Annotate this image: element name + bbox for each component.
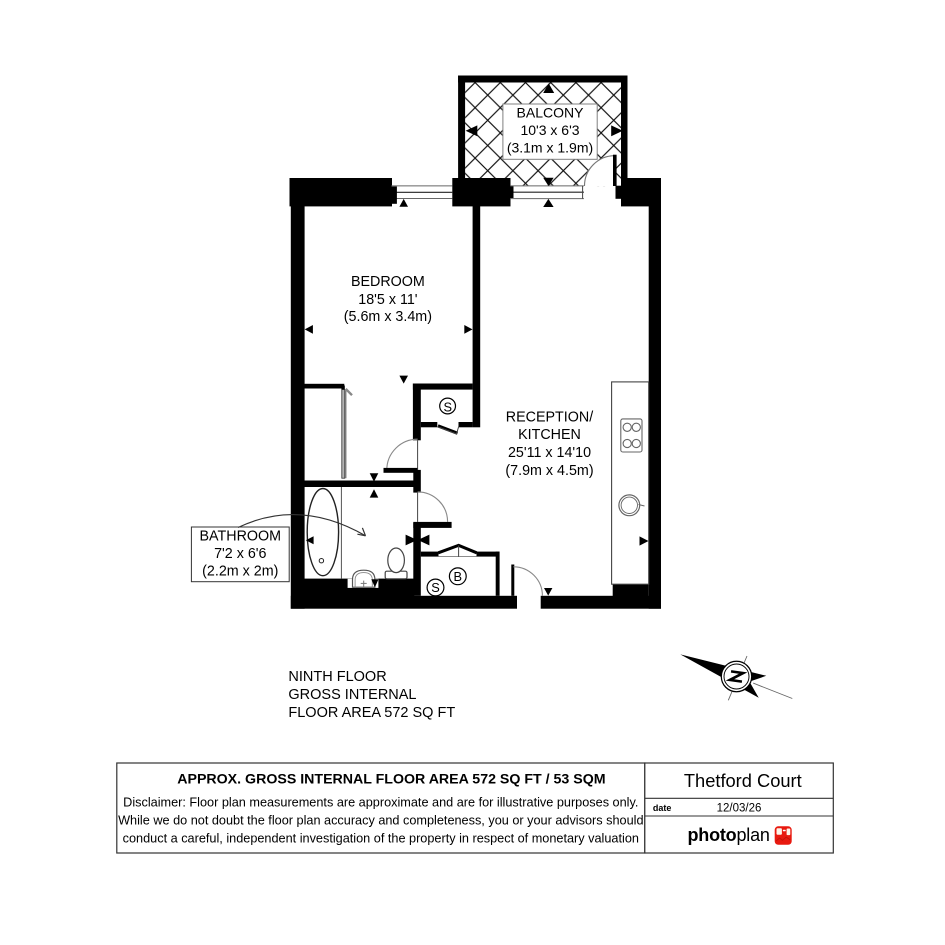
svg-text:FLOOR AREA 572 SQ FT: FLOOR AREA 572 SQ FT (288, 705, 455, 721)
svg-text:S: S (444, 399, 453, 414)
svg-text:(5.6m x 3.4m): (5.6m x 3.4m) (344, 309, 432, 325)
svg-text:BEDROOM: BEDROOM (351, 274, 425, 290)
svg-text:25'11 x 14'10: 25'11 x 14'10 (508, 445, 591, 461)
svg-text:S: S (431, 580, 440, 595)
svg-text:Disclaimer: Floor plan measure: Disclaimer: Floor plan measurements are … (123, 796, 638, 810)
svg-text:B: B (454, 569, 463, 584)
svg-text:Thetford Court: Thetford Court (684, 770, 802, 791)
svg-text:APPROX. GROSS INTERNAL FLOOR A: APPROX. GROSS INTERNAL FLOOR AREA 572 SQ… (177, 772, 605, 788)
svg-text:KITCHEN: KITCHEN (518, 427, 581, 443)
svg-text:BALCONY: BALCONY (517, 105, 585, 121)
svg-text:date: date (653, 803, 672, 813)
svg-text:RECEPTION/: RECEPTION/ (506, 410, 593, 426)
svg-text:BATHROOM: BATHROOM (200, 528, 282, 544)
svg-text:(3.1m x 1.9m): (3.1m x 1.9m) (507, 140, 593, 156)
svg-text:12/03/26: 12/03/26 (717, 803, 762, 815)
svg-text:GROSS INTERNAL: GROSS INTERNAL (288, 687, 416, 703)
svg-text:(7.9m x 4.5m): (7.9m x 4.5m) (505, 463, 593, 479)
svg-text:NINTH FLOOR: NINTH FLOOR (288, 669, 386, 685)
svg-text:While we do not doubt the floo: While we do not doubt the floor plan acc… (118, 814, 643, 828)
svg-text:(2.2m x 2m): (2.2m x 2m) (202, 563, 278, 579)
svg-text:conduct a careful, independent: conduct a careful, independent investiga… (123, 832, 639, 846)
svg-text:10'3 x 6'3: 10'3 x 6'3 (520, 122, 579, 138)
svg-text:photoplan: photoplan (688, 825, 770, 845)
svg-text:7'2 x 6'6: 7'2 x 6'6 (214, 546, 266, 562)
svg-text:18'5 x 11': 18'5 x 11' (358, 292, 418, 308)
